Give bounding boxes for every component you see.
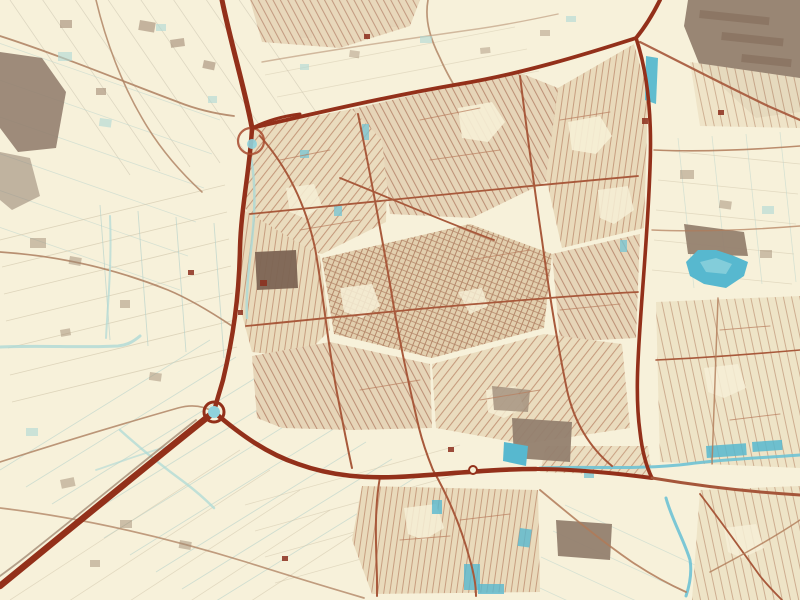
water-bits-city (334, 206, 342, 216)
water-dots-rural (300, 64, 309, 70)
hamlet-patches-midleft (149, 372, 162, 382)
hamlet-patches-east (680, 170, 694, 179)
hamlet-patches-east (719, 200, 732, 210)
landmark-buildings (238, 310, 243, 315)
water-bits-city (620, 240, 627, 252)
roundabout-pond (208, 406, 220, 418)
landmark-buildings (282, 556, 288, 561)
hamlet-patches-bottomleft (90, 560, 100, 567)
water-dots-rural (420, 36, 432, 43)
hamlet-patches-topcenter (349, 50, 360, 58)
water-dots-rural (58, 52, 72, 61)
hamlet-patches-topleft (96, 88, 106, 95)
landmark-buildings (188, 270, 194, 275)
hamlet-patches-topcenter (480, 47, 491, 54)
junction-roundabout-south (469, 466, 477, 474)
water-dots-rural (26, 428, 38, 436)
hamlet-patches-midleft (30, 238, 46, 248)
water-patches-southeast (478, 584, 504, 594)
district-southeast (352, 486, 540, 594)
industrial-block-mid (492, 386, 530, 412)
landmark-buildings (260, 280, 267, 286)
water-patches-east-canal (752, 440, 783, 452)
landmark-buildings (718, 110, 724, 115)
hamlet-patches-topleft (60, 20, 72, 28)
city-map-artwork (0, 0, 800, 600)
hamlet-patches-topcenter (540, 30, 550, 36)
hamlet-patches-bottomleft (120, 520, 132, 528)
water-patches-southeast (432, 500, 442, 514)
map-viewport (0, 0, 800, 600)
water-dots-rural (566, 16, 576, 22)
landmark-buildings (364, 34, 370, 39)
water-dots-rural (99, 118, 112, 128)
water-dots-rural (208, 96, 217, 103)
water-dots-rural (156, 24, 166, 31)
interchange-pond (247, 139, 257, 149)
water-patches-southeast (517, 528, 531, 547)
hamlet-patches-midleft (120, 300, 130, 308)
water-dots-rural (762, 206, 774, 214)
landmark-buildings (642, 118, 648, 124)
hamlet-patches-east (760, 250, 772, 258)
landmark-buildings (448, 447, 454, 452)
